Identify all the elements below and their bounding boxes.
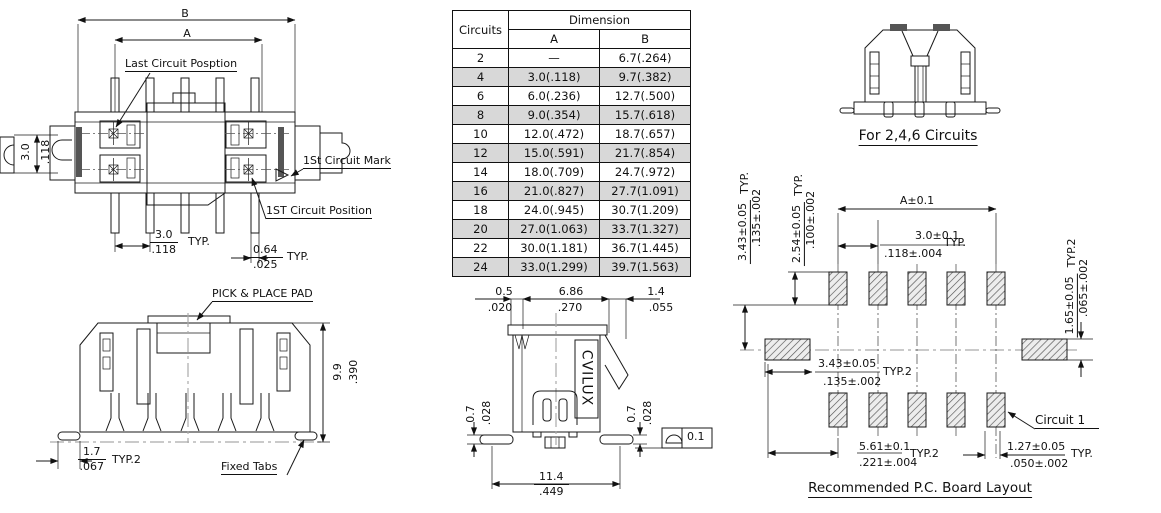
table-row: 2230.0(1.181)36.7(1.445) [453,239,691,258]
pcb-span-mm: 5.61±0.1 [859,441,910,453]
col-header-circuits: Circuits [453,11,509,49]
table-row: 66.0(.236)12.7(.500) [453,87,691,106]
brand-text: CVILUX [578,350,593,406]
foot-mm-right: 0.7 [626,405,638,423]
foot-mm-left: 0.7 [465,405,477,423]
pcb-span-typ2: TYP.2 [910,448,939,460]
drawing-sheet: B A Last Circuit Posption 3.0 .118 1St C… [0,0,1161,513]
pcb-row-dim: 3.43±0.05TYP. .135±.002 [737,172,763,264]
table-row: 89.0(.354)15.7(.618) [453,106,691,125]
pcb-last-mm: 1.27±0.05 [1007,441,1065,453]
pcb-offset-mm: 3.43±0.05 [818,358,876,370]
fixed-tab-typ2-label: TYP.2 [112,454,141,466]
height-in-label: .390 [348,360,360,385]
col-header-dimension: Dimension [509,11,691,30]
table-row: 1215.0(.591)21.7(.854) [453,144,691,163]
dim-a-label: A [183,28,191,40]
pitch-typ-label: TYP. [188,236,210,248]
pcb-offset-in: .135±.002 [823,376,881,388]
pcb-span-in: .221±.004 [859,457,917,469]
pcb-layout-title: Recommended P.C. Board Layout [808,481,1032,498]
pcb-last-typ: TYP. [1071,448,1093,460]
first-circuit-mark-label: 1St Circuit Mark [303,155,391,169]
table-row: 43.0(.118)9.7(.382) [453,68,691,87]
row-pitch-mm-label: 3.0 [20,143,32,161]
col-header-b: B [600,30,691,49]
table-row: 2—6.7(.264) [453,49,691,68]
first-circuit-position-label: 1ST Circuit Position [266,205,372,219]
circuits-246-caption: For 2,4,6 Circuits [859,129,978,146]
pcb-pitch-typ: TYP. [944,237,966,249]
pcb-last-in: .050±.002 [1010,458,1068,470]
circuit1-label: Circuit 1 [1035,414,1099,429]
table-row: 1012.0(.472)18.7(.657) [453,125,691,144]
front-width-dim: 11.4.449 [534,471,569,498]
pcb-pitch-in: .118±.004 [884,248,942,260]
side-view-drawing [20,283,365,498]
circuits-dimension-table: Circuits Dimension A B 2—6.7(.264) 43.0(… [452,10,691,277]
flatness-value: 0.1 [687,431,705,443]
top-view-drawing [0,0,420,285]
pcb-dim-a-label: A±0.1 [900,195,934,207]
table-row: 1824.0(.945)30.7(1.209) [453,201,691,220]
fixed-tabs-label: Fixed Tabs [221,461,277,475]
pcb-pad-length-dim: 2.54±0.05TYP. .100±.002 [791,174,817,266]
table-row: 2027.0(1.063)33.7(1.327) [453,220,691,239]
row-pitch-in-label: .118 [40,140,52,165]
front-dim1-mm: 0.5 [495,286,513,298]
pick-place-pad-label: PICK & PLACE PAD [212,288,313,302]
table-row: 1621.0(.827)27.7(1.091) [453,182,691,201]
height-mm-label: 9.9 [332,363,344,381]
pcb-pad-height-dim: 1.65±0.05TYP.2 .065±.002 [1064,238,1090,337]
pitch-dim: 3.0.118 [150,229,178,256]
foot-in-right: .028 [642,401,654,426]
front-dim2-in: .270 [558,302,583,314]
foot-in-left: .028 [481,401,493,426]
front-dim2-mm: 6.86 [559,286,584,298]
fixed-tab-dim: 1.7.067 [78,446,106,473]
pcb-offset-typ2: TYP.2 [883,366,912,378]
front-dim1-in: .020 [488,302,513,314]
last-circuit-position-label: Last Circuit Posption [125,58,237,72]
tab-width-dim: 0.64.025 [248,244,283,271]
table-row: 1418.0(.709)24.7(.972) [453,163,691,182]
dim-b-label: B [181,8,189,20]
tab-typ-label: TYP. [287,251,309,263]
front-dim3-in: .055 [649,302,674,314]
col-header-a: A [509,30,600,49]
front-dim3-mm: 1.4 [647,286,665,298]
table-row: 2433.0(1.299)39.7(1.563) [453,258,691,277]
